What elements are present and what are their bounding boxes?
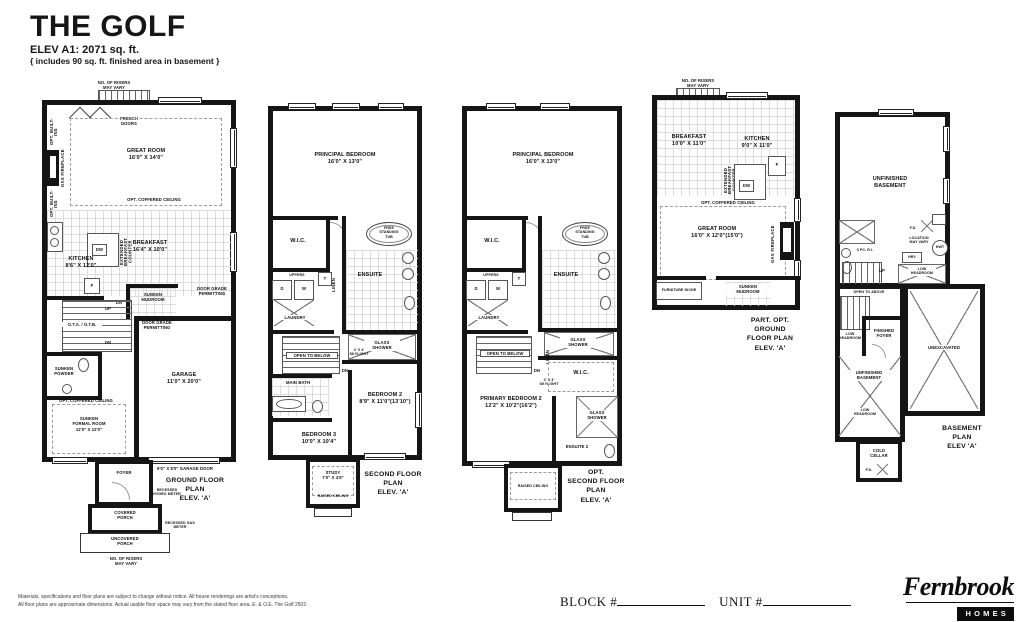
finished-foyer-label: FINISHED FOYER <box>866 328 902 339</box>
block-label: BLOCK # <box>560 594 617 609</box>
sink <box>841 248 851 258</box>
hwt-label: HWT <box>932 245 948 249</box>
logo-homes-text: HOMES <box>957 607 1014 621</box>
low-headroom-label: LOW HEADROOM <box>838 332 862 341</box>
unfinished-basement-label: UNFINISHED BASEMENT <box>858 176 922 190</box>
electrical-panel <box>932 214 946 225</box>
cold-cellar-label: COLD CELLAR <box>862 448 896 459</box>
low-headroom-label: LOW HEADROOM <box>908 267 936 276</box>
window <box>878 109 914 116</box>
stairs <box>842 262 882 286</box>
unexcavated-label: UNEXCAVATED <box>910 345 978 350</box>
floor-drain <box>877 464 888 475</box>
floor-drain-label: F.D. <box>862 468 876 472</box>
logo-brand-text: Fernbrook <box>898 574 1014 600</box>
window <box>943 178 950 204</box>
up-label: UP <box>874 268 890 273</box>
rough-in-closet <box>839 220 875 244</box>
block-unit-line: BLOCK # UNIT # <box>560 594 851 608</box>
unfinished-area-cross <box>839 356 901 436</box>
open-to-above-label: OPEN TO ABOVE <box>848 290 890 294</box>
floorplan-sheet: THE GOLF ELEV A1: 2071 sq. ft. { include… <box>0 0 1024 622</box>
fernbrook-logo: Fernbrook HOMES <box>898 574 1014 621</box>
low-headroom-label: LOW HEADROOM <box>852 408 878 417</box>
unit-blank-line[interactable] <box>763 594 851 606</box>
hrv-label: HRV <box>902 255 922 259</box>
disclaimer-text: Materials, specifications and floor plan… <box>18 593 528 609</box>
three-pc-rough-in-label: 3 PC. R.I. <box>852 248 878 252</box>
logo-rule <box>906 602 1014 603</box>
block-blank-line[interactable] <box>617 594 705 606</box>
unfinished-basement-label: UNFINISHED BASEMENT <box>846 370 892 381</box>
wall-segment <box>862 316 904 320</box>
window <box>943 126 950 152</box>
plan-title-basement: BASEMENT PLAN ELEV 'A' <box>934 424 990 452</box>
cold-cellar-walls <box>856 440 902 482</box>
basement-plan: UNFINISHED BASEMENT 3 PC. R.I. F.D. LOCA… <box>0 0 1024 622</box>
floor-drain-label: F.D. <box>906 226 920 230</box>
unit-label: UNIT # <box>719 594 763 609</box>
